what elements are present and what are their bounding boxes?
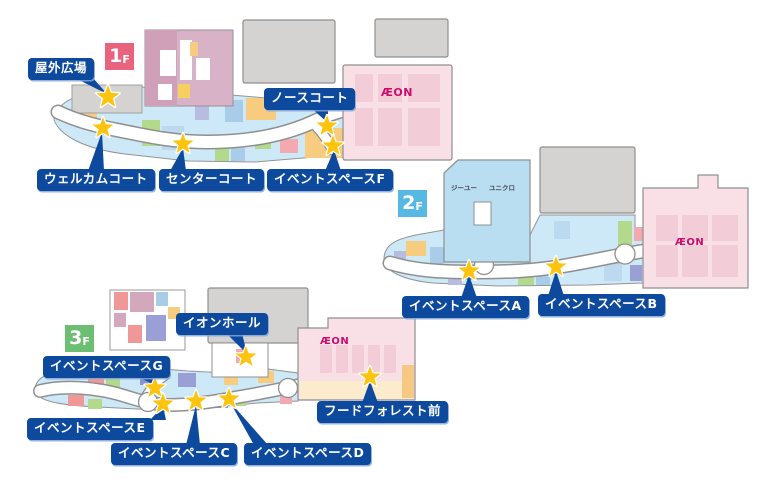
star-icon-event-space-d <box>219 388 240 408</box>
label-event-space-e: イベントスペースE <box>27 418 153 440</box>
label-food-forest: フードフォレスト前 <box>317 401 448 423</box>
label-event-space-f: イベントスペースF <box>267 169 393 191</box>
label-north-court: ノースコート <box>264 88 355 110</box>
label-center-court: センターコート <box>159 169 264 191</box>
label-tails <box>75 78 564 445</box>
star-icon-event-space-c <box>186 390 207 410</box>
label-event-space-d: イベントスペースD <box>244 443 371 465</box>
tail-event-space-c <box>186 405 200 445</box>
floor-badge-3f: 3F <box>65 325 94 352</box>
label-welcome-court: ウェルカムコート <box>37 169 155 191</box>
star-icon-event-space-a <box>459 260 480 280</box>
star-icon-food-forest <box>360 366 381 386</box>
label-event-space-g: イベントスペースG <box>43 356 170 378</box>
label-aeon-hall: イオンホール <box>176 313 268 335</box>
star-icon-event-space-b <box>546 256 567 276</box>
floor-badge-2f: 2F <box>398 190 427 217</box>
star-icon-event-space-e <box>153 393 174 413</box>
star-icon-event-space-f <box>323 135 344 155</box>
tail-outdoor-plaza <box>75 78 107 94</box>
star-icon-welcome-court <box>93 117 114 137</box>
mall-floor-guide: 1F 2F 3F ÆON ÆON ÆON ジーユー ユニクロ 屋外広場 ノースコ… <box>0 0 770 485</box>
star-icon-north-court <box>317 115 338 135</box>
label-outdoor-plaza: 屋外広場 <box>28 58 94 80</box>
label-event-space-c: イベントスペースC <box>111 443 237 465</box>
floor-badge-1f: 1F <box>105 43 134 70</box>
star-icon-center-court <box>173 133 194 153</box>
label-event-space-a: イベントスペースA <box>402 296 529 318</box>
label-event-space-b: イベントスペースB <box>538 294 665 316</box>
star-icon-aeon-hall <box>236 346 257 366</box>
